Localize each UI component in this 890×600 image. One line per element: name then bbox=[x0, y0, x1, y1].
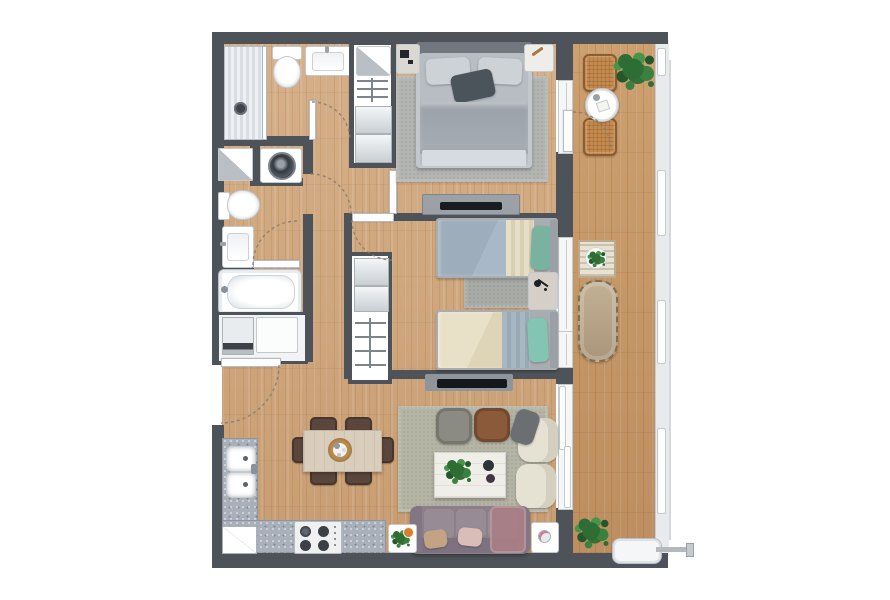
coffee-table-plant bbox=[450, 463, 464, 477]
bed-blanket bbox=[420, 102, 528, 154]
centerpiece-tray bbox=[328, 438, 352, 462]
balcony-plant-top bbox=[623, 59, 644, 80]
slider-pane-2 bbox=[564, 446, 571, 508]
pouf-gray bbox=[436, 408, 472, 444]
bedside-table bbox=[528, 272, 558, 310]
armchair-2 bbox=[516, 464, 556, 508]
coffee-table bbox=[434, 452, 506, 498]
toilet-1-bowl bbox=[273, 56, 301, 88]
twin-bed-upper-blanket bbox=[438, 220, 512, 276]
master-tv bbox=[440, 202, 502, 210]
closet2-hook bbox=[369, 318, 371, 368]
centerpiece-bottle bbox=[334, 443, 340, 449]
wardrobe-shelf bbox=[355, 134, 392, 163]
wall-balcony-a bbox=[556, 32, 573, 80]
bedroom2-rug bbox=[464, 276, 532, 308]
shower-glass bbox=[262, 46, 267, 140]
bathroom1-door-leaf bbox=[309, 100, 316, 140]
toilet-2-bowl bbox=[227, 190, 260, 220]
kitchen-sink-basin-2 bbox=[226, 472, 256, 498]
refrigerator bbox=[222, 526, 257, 554]
pouf-leather bbox=[474, 408, 510, 442]
twin-bed-lower-pillow bbox=[527, 318, 549, 363]
washbasin-1-faucet bbox=[325, 46, 329, 53]
shower-stall bbox=[224, 46, 266, 140]
nightstand-left-decor bbox=[400, 50, 409, 58]
entry-door-leaf bbox=[221, 358, 281, 367]
coffee-cup-icon bbox=[593, 94, 600, 101]
tall-cabinet bbox=[218, 148, 253, 181]
bed-foot-fold bbox=[422, 150, 526, 166]
burner bbox=[300, 526, 311, 537]
sofa-pillow-tan bbox=[423, 528, 448, 549]
decor-bowl bbox=[483, 460, 494, 471]
balustrade-panel bbox=[657, 170, 666, 236]
balustrade-panel bbox=[657, 300, 666, 364]
heat-pump-joint bbox=[686, 543, 694, 557]
shower-head-icon bbox=[234, 102, 247, 115]
sofa-pillow-blush bbox=[457, 527, 483, 547]
window-bedroom2-1 bbox=[558, 237, 573, 332]
sink-drain-dot bbox=[243, 456, 248, 461]
washbasin-1-basin bbox=[312, 52, 344, 71]
bathtub-inner bbox=[227, 275, 295, 309]
bistro-chair-lower bbox=[583, 118, 617, 156]
plant-table-plant bbox=[591, 253, 600, 262]
window-bedroom2-2 bbox=[558, 331, 573, 368]
nightstand-left bbox=[396, 44, 420, 74]
heat-pump-unit bbox=[612, 538, 662, 564]
bedroom2-door-leaf bbox=[352, 213, 394, 222]
living-tv bbox=[437, 379, 507, 388]
washbasin-2-faucet bbox=[220, 242, 226, 246]
hanger-hook bbox=[371, 78, 373, 102]
bathtub-faucet-icon bbox=[221, 286, 228, 293]
sofa-throw-blanket bbox=[490, 506, 526, 553]
wall-balcony-b bbox=[556, 152, 573, 237]
bistro-chair-upper bbox=[583, 54, 617, 92]
balustrade-panel bbox=[657, 48, 666, 76]
wall-bottom bbox=[212, 553, 668, 568]
twin-bed-upper-headboard bbox=[550, 220, 558, 276]
washer-dryer-unit bbox=[222, 317, 254, 355]
balcony-plant-bottom bbox=[582, 522, 600, 540]
twin-bed-lower-throw bbox=[502, 312, 530, 368]
wardrobe-shelf bbox=[355, 106, 392, 134]
slider-pane-1 bbox=[559, 386, 566, 450]
washbasin-2-basin bbox=[227, 233, 249, 261]
closet2-shelf bbox=[354, 286, 389, 312]
wardrobe-corner-unit bbox=[356, 46, 391, 76]
kitchen-faucet-icon bbox=[251, 464, 257, 474]
master-balcony-door-leaf bbox=[563, 110, 573, 152]
closet2-shelf bbox=[354, 258, 389, 286]
balustrade-panel bbox=[657, 428, 666, 514]
vase-icon bbox=[538, 530, 551, 543]
wall-hall-west-upper bbox=[303, 136, 313, 174]
twin-bed-lower-blanket bbox=[438, 312, 504, 368]
bath-inner-door-leaf bbox=[253, 260, 300, 268]
twin-bed-upper-throw bbox=[506, 220, 534, 276]
floor-plan-canvas bbox=[0, 0, 890, 600]
cooktop-knobs bbox=[334, 526, 336, 528]
twin-bed-upper-pillow bbox=[530, 226, 552, 271]
wall-balcony-c bbox=[556, 366, 573, 384]
washing-machine-drum bbox=[268, 152, 296, 180]
wicker-bench bbox=[578, 280, 618, 362]
orange-dish bbox=[403, 527, 414, 538]
balustrade-outer-edge bbox=[669, 60, 671, 540]
twin-bed-lower-headboard bbox=[550, 312, 558, 368]
water-heater-cabinet bbox=[256, 317, 298, 353]
